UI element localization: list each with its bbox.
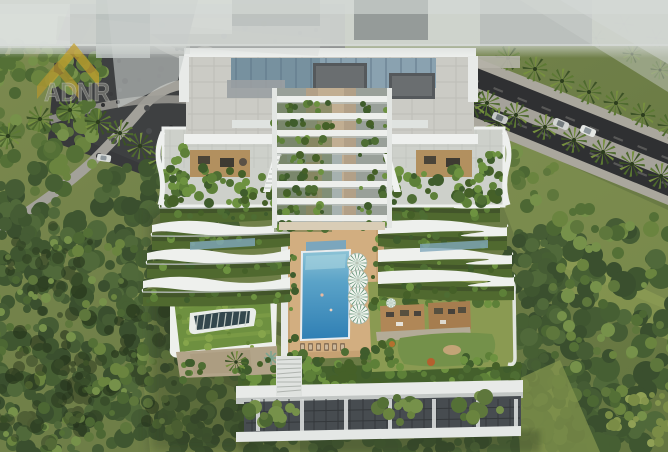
- svg-text:ADNR: ADNR: [44, 77, 110, 107]
